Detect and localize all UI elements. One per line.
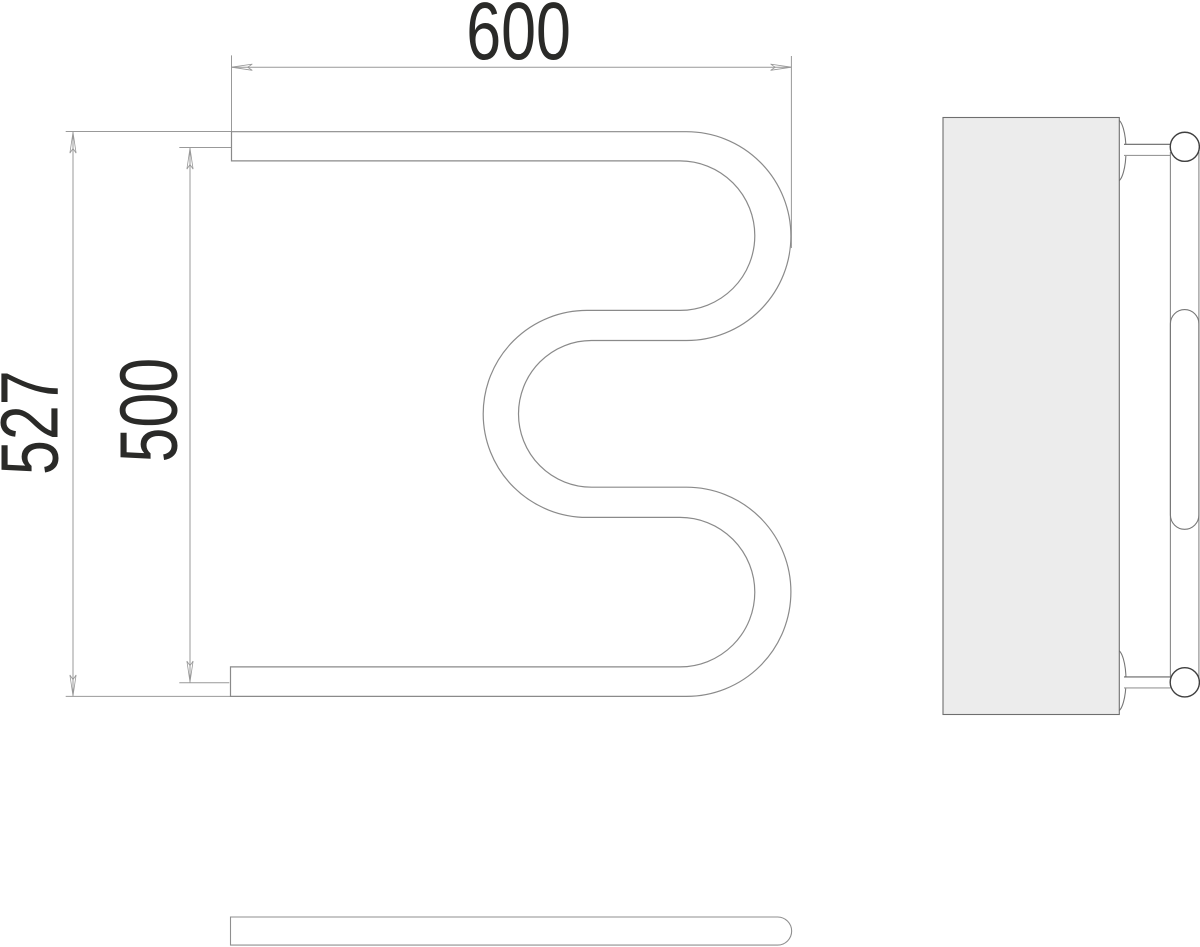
svg-text:600: 600 — [466, 0, 571, 77]
svg-text:527: 527 — [0, 370, 75, 475]
svg-text:500: 500 — [104, 358, 195, 463]
